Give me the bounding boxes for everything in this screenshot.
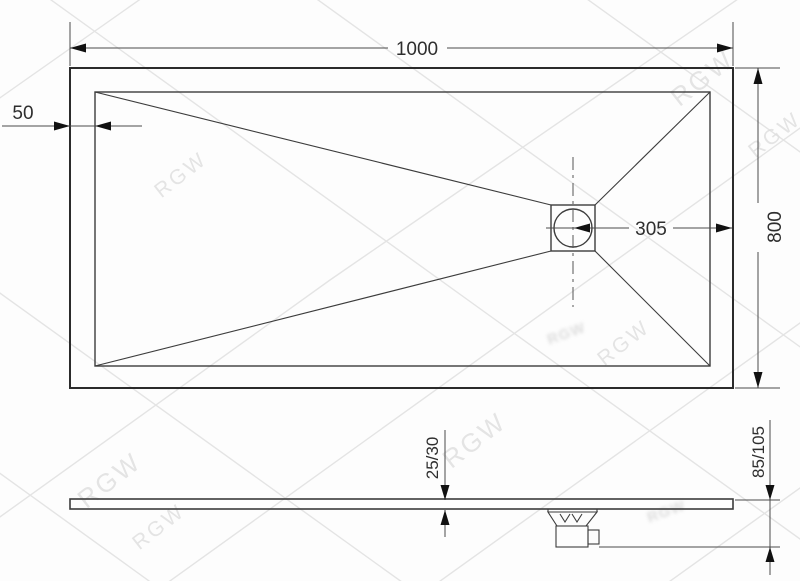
arrowhead-down	[441, 485, 450, 500]
arrowhead-up	[441, 510, 450, 525]
watermark-layer: RGW RGW RGW RGW RGW RGW RGW RGW RGW	[0, 0, 800, 581]
slope-fold-line-bottom-left	[95, 251, 551, 366]
arrowhead-down	[766, 485, 775, 500]
watermark-logo-stamp: RGW	[545, 319, 588, 349]
watermark-brand-text: RGW	[72, 446, 148, 514]
watermark-logo-stamp: RGW	[645, 497, 688, 527]
drawing-svg: RGW RGW RGW RGW RGW RGW RGW RGW RGW 1000	[0, 0, 800, 581]
watermark-brand-text: RGW	[150, 147, 212, 202]
watermark-brand-text: RGW	[744, 107, 800, 162]
watermark-brand-text: RGW	[128, 499, 190, 554]
arrowhead-up	[766, 547, 775, 562]
dim-drain-to-edge: 305	[574, 219, 732, 240]
technical-drawing-canvas: RGW RGW RGW RGW RGW RGW RGW RGW RGW 1000	[0, 0, 800, 581]
arrowhead-down	[754, 372, 763, 388]
tray-inner-rim-edge	[95, 92, 710, 366]
drain-trap-outlet	[588, 530, 599, 544]
watermark-brand-text: RGW	[593, 315, 655, 370]
dim-top-width-label: 1000	[396, 39, 438, 60]
arrowhead-left	[95, 122, 111, 131]
dim-depth-label: 800	[765, 211, 786, 243]
dim-overall-height-label: 85/105	[749, 426, 768, 478]
drain-trap-bolt	[572, 514, 582, 522]
slope-fold-line-top-right	[595, 92, 710, 205]
watermark-brand-text: RGW	[437, 406, 513, 474]
arrowhead-left	[574, 224, 590, 233]
arrowhead-up	[754, 68, 763, 84]
dim-overall-height: 85/105	[599, 420, 780, 575]
dim-edge-thickness-label: 25/30	[423, 437, 442, 480]
watermark-line	[0, 0, 260, 140]
watermark-brand-text: RGW	[665, 44, 741, 112]
dim-depth: 800	[735, 68, 786, 388]
arrowhead-left	[70, 44, 86, 53]
arrowhead-right	[716, 224, 732, 233]
dim-rim-offset: 50	[2, 103, 142, 131]
arrowhead-right	[54, 122, 70, 131]
dim-rim-offset-label: 50	[12, 103, 33, 124]
drain-trap-bolt	[560, 514, 570, 522]
dim-top-width: 1000	[70, 22, 733, 66]
dim-drain-to-edge-label: 305	[635, 219, 667, 240]
drain-trap-body	[556, 526, 588, 547]
